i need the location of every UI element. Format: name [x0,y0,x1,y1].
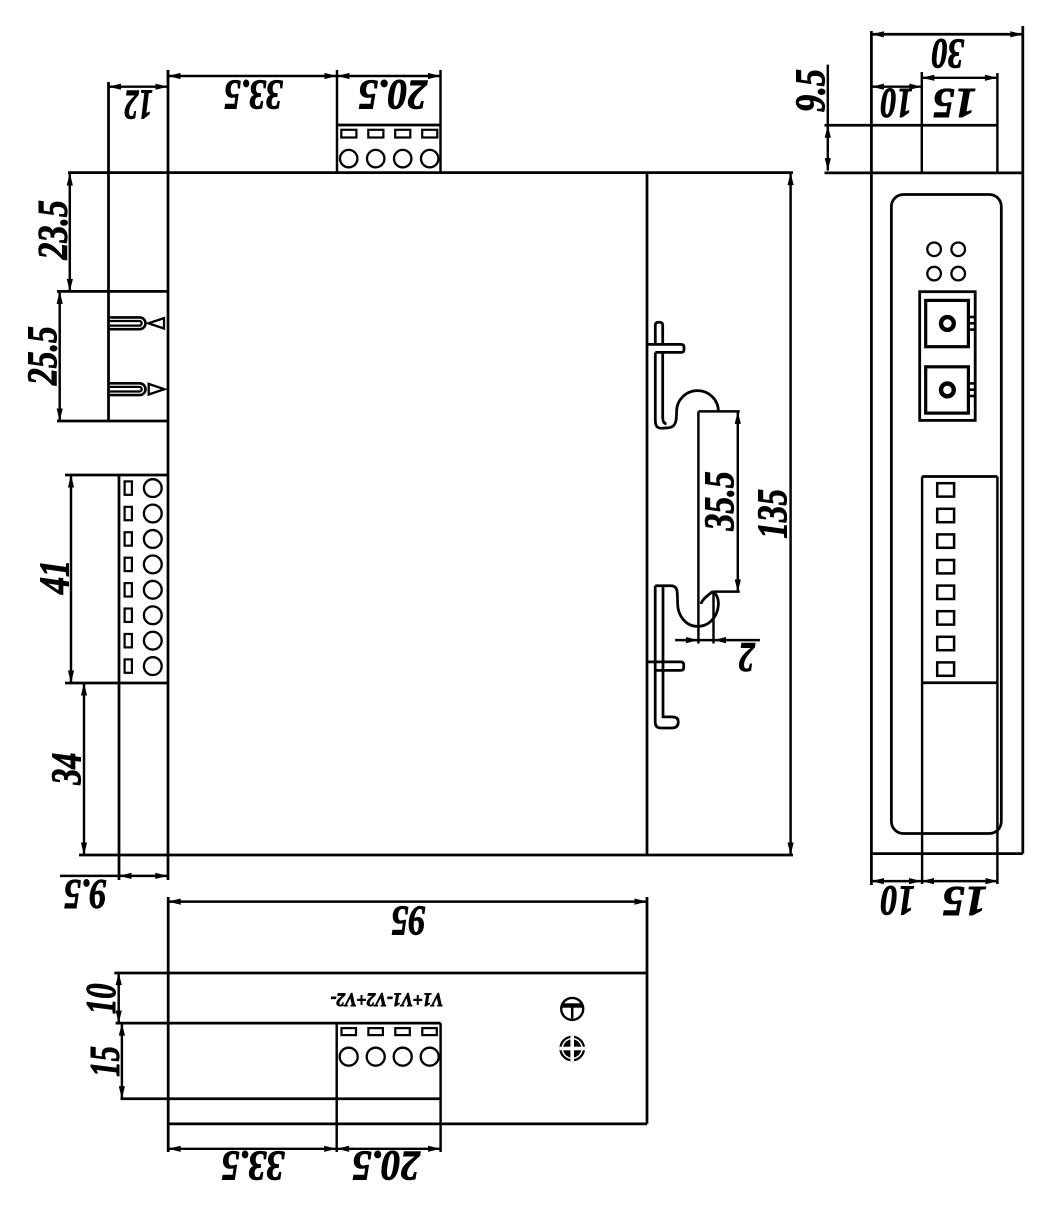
svg-text:10: 10 [881,877,915,924]
svg-text:15: 15 [933,79,976,126]
svg-text:2: 2 [739,633,756,680]
svg-text:20.5: 20.5 [358,71,428,118]
svg-text:33.5: 33.5 [224,71,283,118]
svg-text:33.5: 33.5 [221,1141,285,1188]
svg-text:41: 41 [31,560,78,595]
svg-text:9.5: 9.5 [787,69,834,112]
svg-text:135: 135 [749,489,796,539]
svg-text:25.5: 25.5 [19,326,66,386]
svg-text:15: 15 [942,877,987,924]
svg-text:34: 34 [43,753,90,786]
svg-text:95: 95 [391,896,425,943]
svg-text:30: 30 [932,30,965,77]
svg-text:10: 10 [881,79,913,126]
svg-text:9.5: 9.5 [64,870,107,917]
svg-text:V1+V1-V2+V2-: V1+V1-V2+V2- [331,989,444,1010]
svg-text:20.5: 20.5 [352,1141,421,1188]
svg-text:23.5: 23.5 [30,200,77,260]
svg-text:15: 15 [82,1046,129,1077]
svg-text:10: 10 [78,984,125,1015]
svg-text:35.5: 35.5 [697,471,744,531]
svg-text:12: 12 [124,80,153,127]
